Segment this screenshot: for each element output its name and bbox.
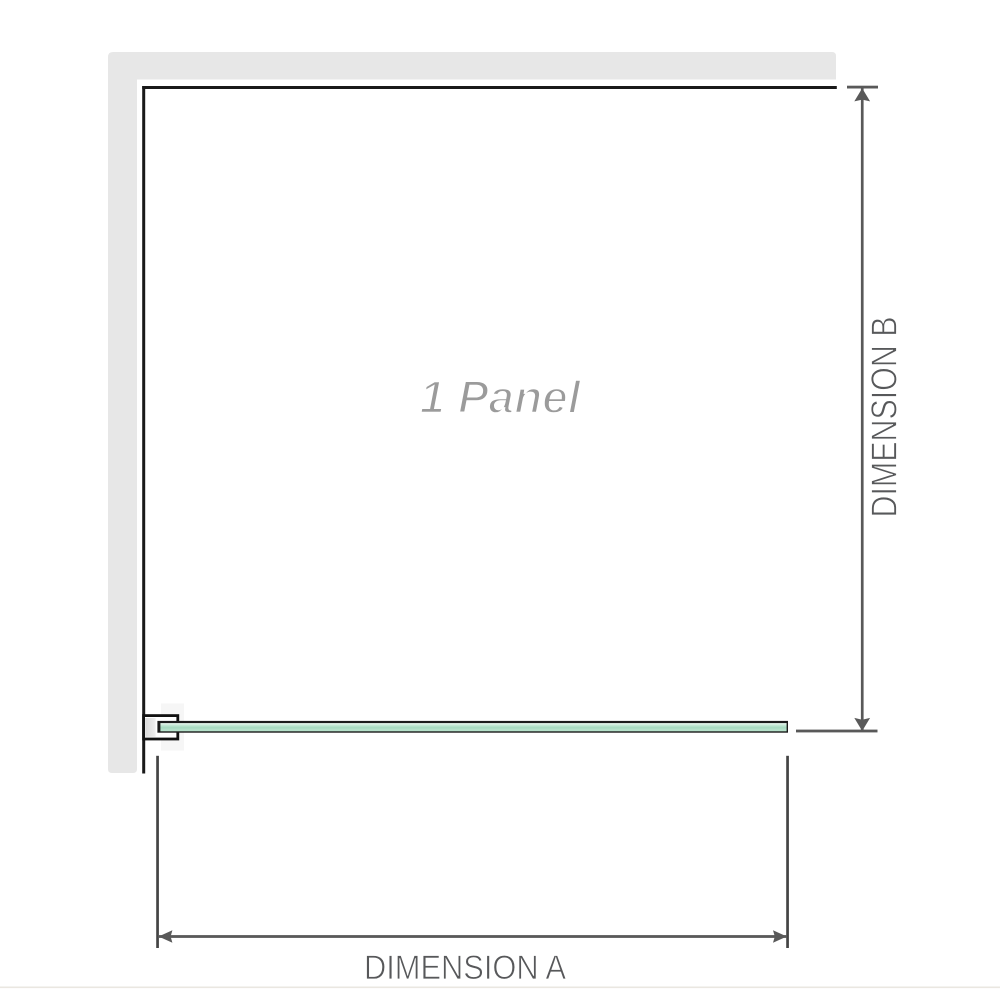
svg-text:DIMENSION A: DIMENSION A (364, 949, 566, 987)
svg-text:1 Panel: 1 Panel (419, 371, 581, 423)
svg-text:DIMENSION B: DIMENSION B (864, 317, 905, 518)
